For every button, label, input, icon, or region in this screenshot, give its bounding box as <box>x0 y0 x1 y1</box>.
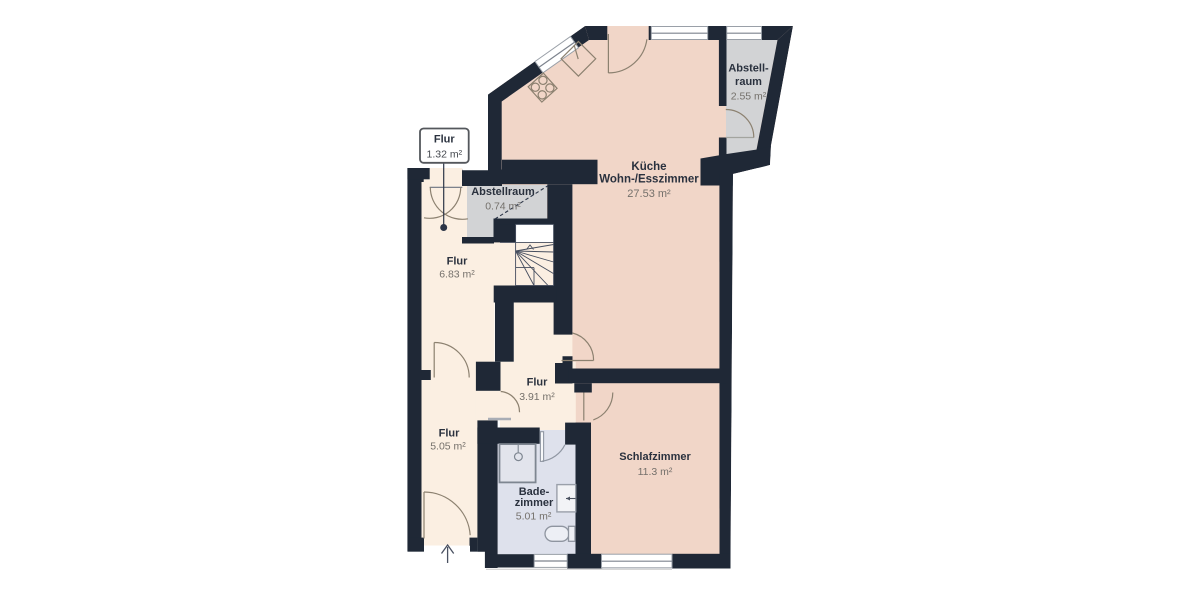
svg-text:5.01 m²: 5.01 m² <box>516 511 552 523</box>
svg-text:5.05 m²: 5.05 m² <box>430 441 466 453</box>
svg-text:11.3 m²: 11.3 m² <box>638 466 673 478</box>
svg-text:1.32 m²: 1.32 m² <box>426 148 462 160</box>
svg-text:Wohn-/Esszimmer: Wohn-/Esszimmer <box>599 174 699 186</box>
svg-text:Abstellraum: Abstellraum <box>471 186 535 198</box>
svg-text:Flur: Flur <box>527 377 548 389</box>
svg-text:Abstell-: Abstell- <box>728 63 769 75</box>
svg-text:27.53 m²: 27.53 m² <box>627 188 671 200</box>
svg-text:Küche: Küche <box>631 161 666 173</box>
svg-text:zimmer: zimmer <box>515 497 554 509</box>
svg-text:Flur: Flur <box>439 428 460 440</box>
svg-text:Flur: Flur <box>434 133 455 145</box>
svg-text:Schlafzimmer: Schlafzimmer <box>619 451 691 463</box>
svg-text:raum: raum <box>735 76 762 88</box>
svg-text:6.83 m²: 6.83 m² <box>439 269 475 281</box>
svg-text:3.91 m²: 3.91 m² <box>519 391 555 403</box>
svg-text:Flur: Flur <box>447 256 468 268</box>
svg-text:2.55 m²: 2.55 m² <box>731 91 767 103</box>
svg-text:0.74 m²: 0.74 m² <box>485 201 521 213</box>
